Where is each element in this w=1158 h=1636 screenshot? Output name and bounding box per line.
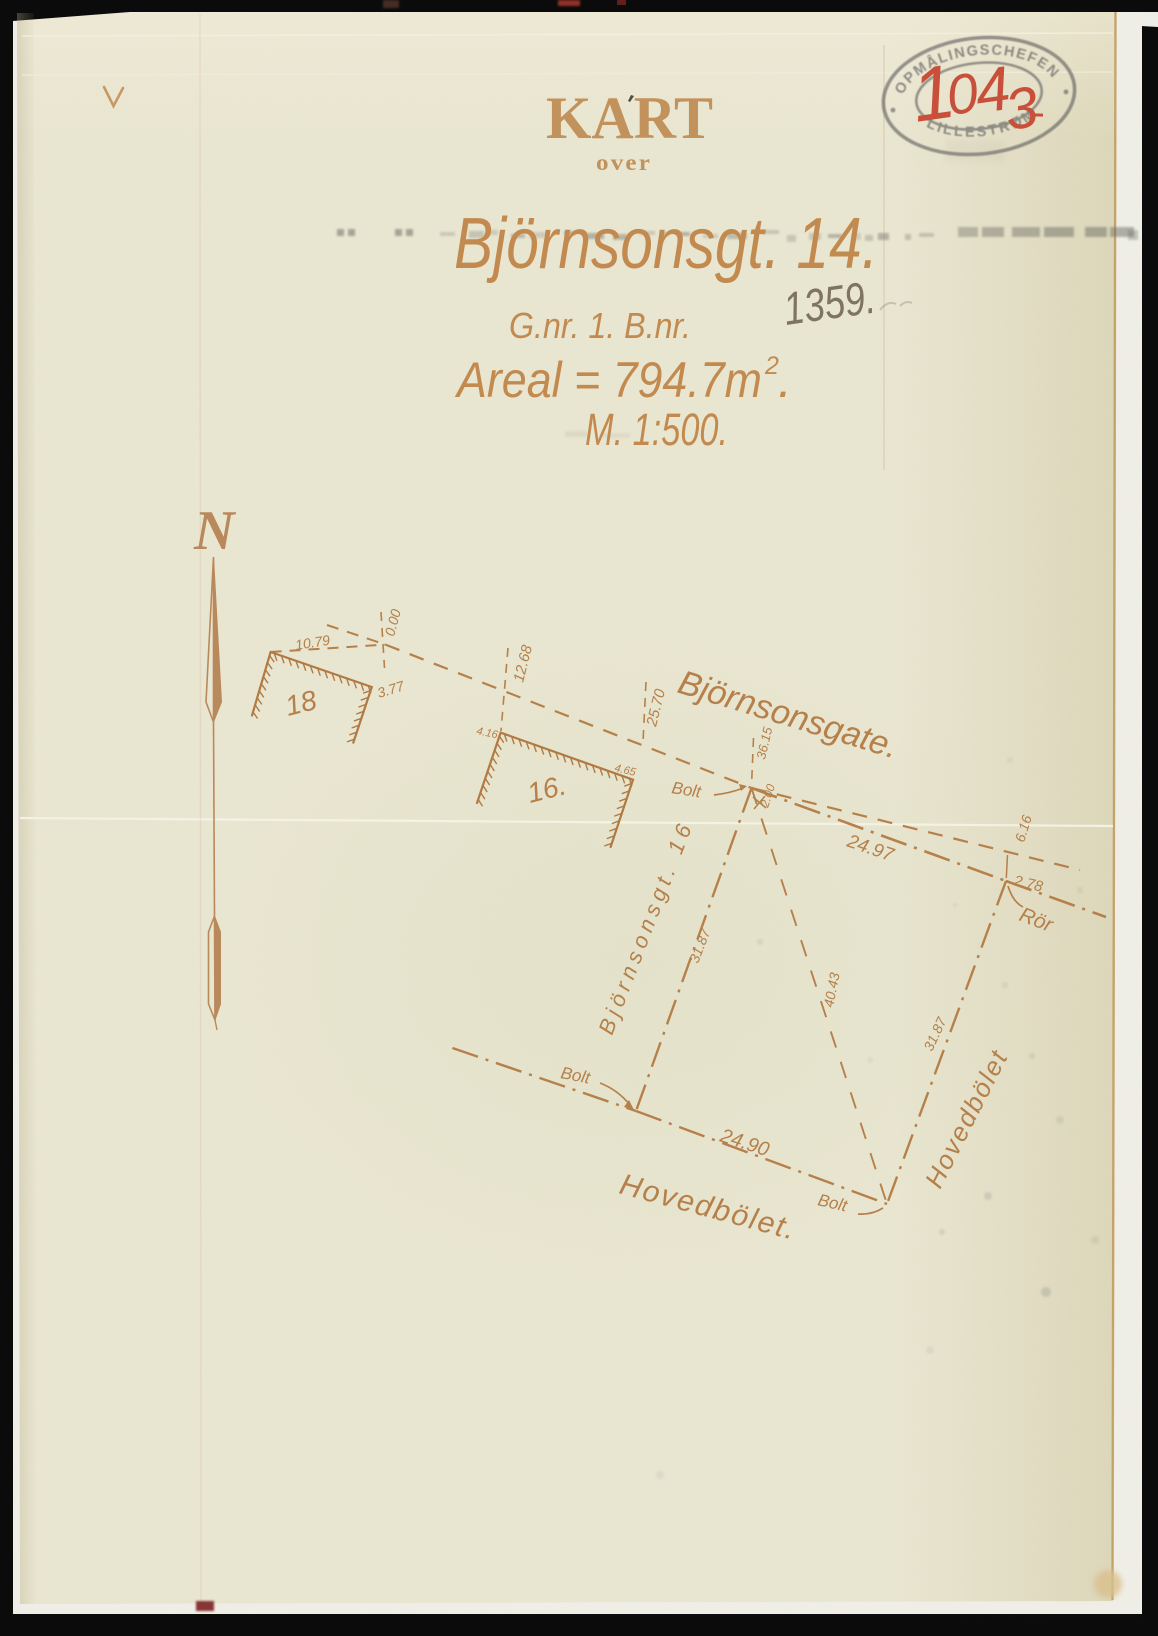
svg-text:over: over: [596, 150, 652, 175]
svg-text:2: 2: [764, 352, 779, 380]
svg-text:M. 1:500.: M. 1:500.: [585, 404, 728, 455]
svg-text:KART: KART: [546, 85, 713, 151]
svg-text:Areal = 794.7m: Areal = 794.7m: [454, 352, 762, 408]
svg-text:Björnsonsgt. 14.: Björnsonsgt. 14.: [454, 204, 878, 284]
svg-text:G.nr. 1. B.nr.: G.nr. 1. B.nr.: [509, 305, 691, 346]
svg-text:.: .: [778, 352, 792, 408]
svg-text:N: N: [193, 500, 237, 562]
